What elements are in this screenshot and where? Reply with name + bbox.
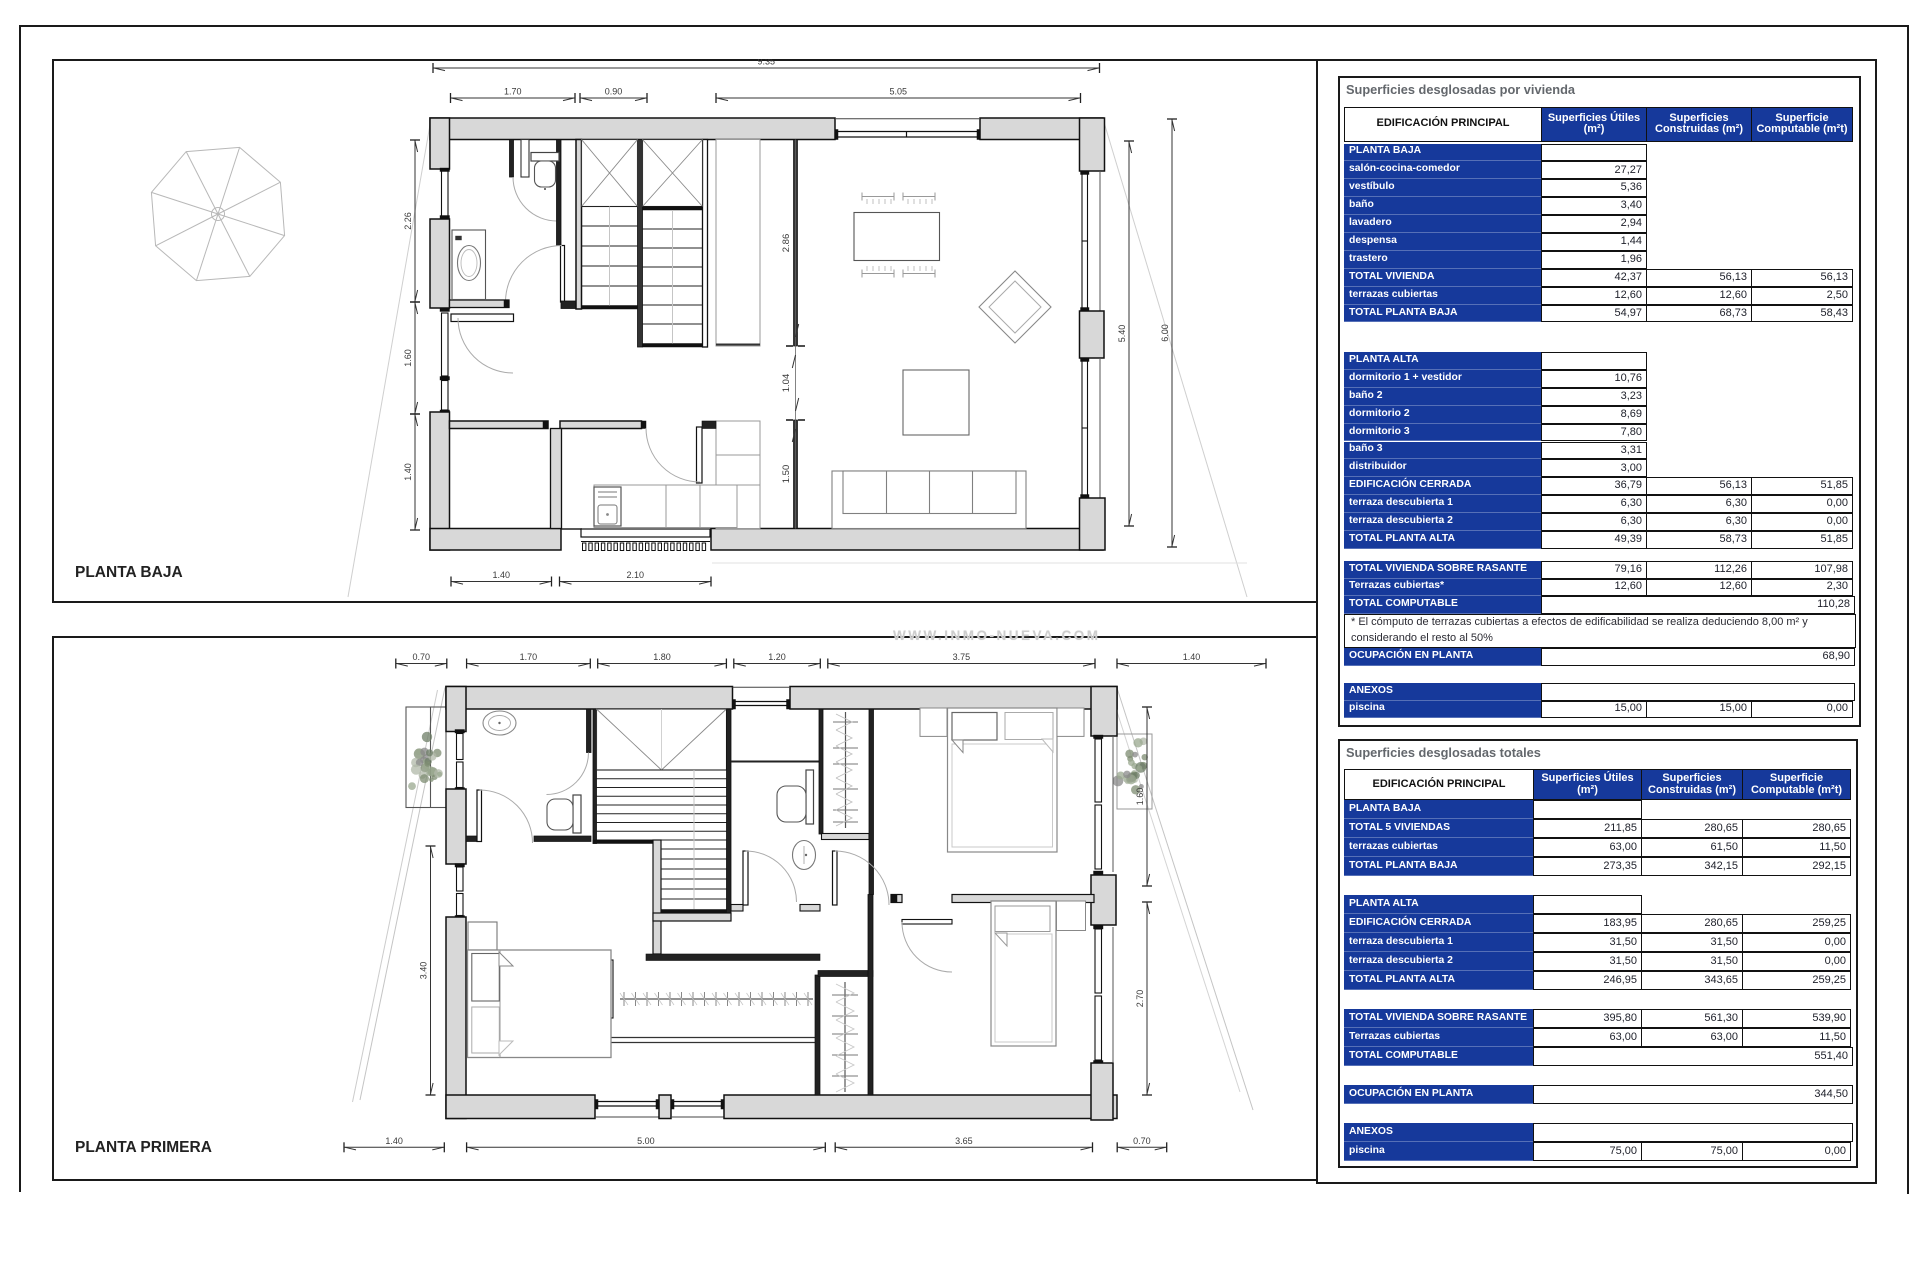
svg-text:0.70: 0.70 [1133, 1136, 1151, 1146]
svg-text:3.65: 3.65 [955, 1136, 973, 1146]
svg-text:0.90: 0.90 [605, 87, 623, 97]
svg-text:PLANTA PRIMERA: PLANTA PRIMERA [75, 1139, 212, 1156]
svg-text:1.70: 1.70 [520, 652, 538, 662]
svg-text:2.26: 2.26 [403, 212, 413, 230]
svg-text:1.50: 1.50 [781, 465, 792, 484]
svg-text:1.04: 1.04 [781, 374, 792, 393]
svg-text:1.40: 1.40 [385, 1136, 403, 1146]
svg-text:1.20: 1.20 [768, 652, 786, 662]
svg-text:9.35: 9.35 [757, 59, 775, 67]
svg-text:1.80: 1.80 [653, 652, 671, 662]
svg-text:2.70: 2.70 [1135, 990, 1145, 1008]
svg-text:5.00: 5.00 [637, 1136, 655, 1146]
svg-text:1.40: 1.40 [492, 570, 510, 580]
svg-text:5.40: 5.40 [1117, 325, 1127, 343]
svg-text:5.05: 5.05 [889, 87, 907, 97]
svg-text:1.40: 1.40 [1183, 652, 1201, 662]
svg-text:3.40: 3.40 [419, 962, 429, 980]
svg-text:1.40: 1.40 [403, 463, 413, 481]
svg-text:6.00: 6.00 [1160, 324, 1170, 342]
svg-text:0.70: 0.70 [413, 652, 431, 662]
svg-text:1.70: 1.70 [504, 87, 522, 97]
svg-text:1.60: 1.60 [403, 349, 413, 367]
svg-text:PLANTA BAJA: PLANTA BAJA [75, 564, 183, 581]
svg-text:1.60: 1.60 [1135, 788, 1145, 806]
svg-text:2.86: 2.86 [781, 234, 792, 253]
svg-text:2.10: 2.10 [626, 570, 644, 580]
svg-text:3.75: 3.75 [953, 652, 971, 662]
